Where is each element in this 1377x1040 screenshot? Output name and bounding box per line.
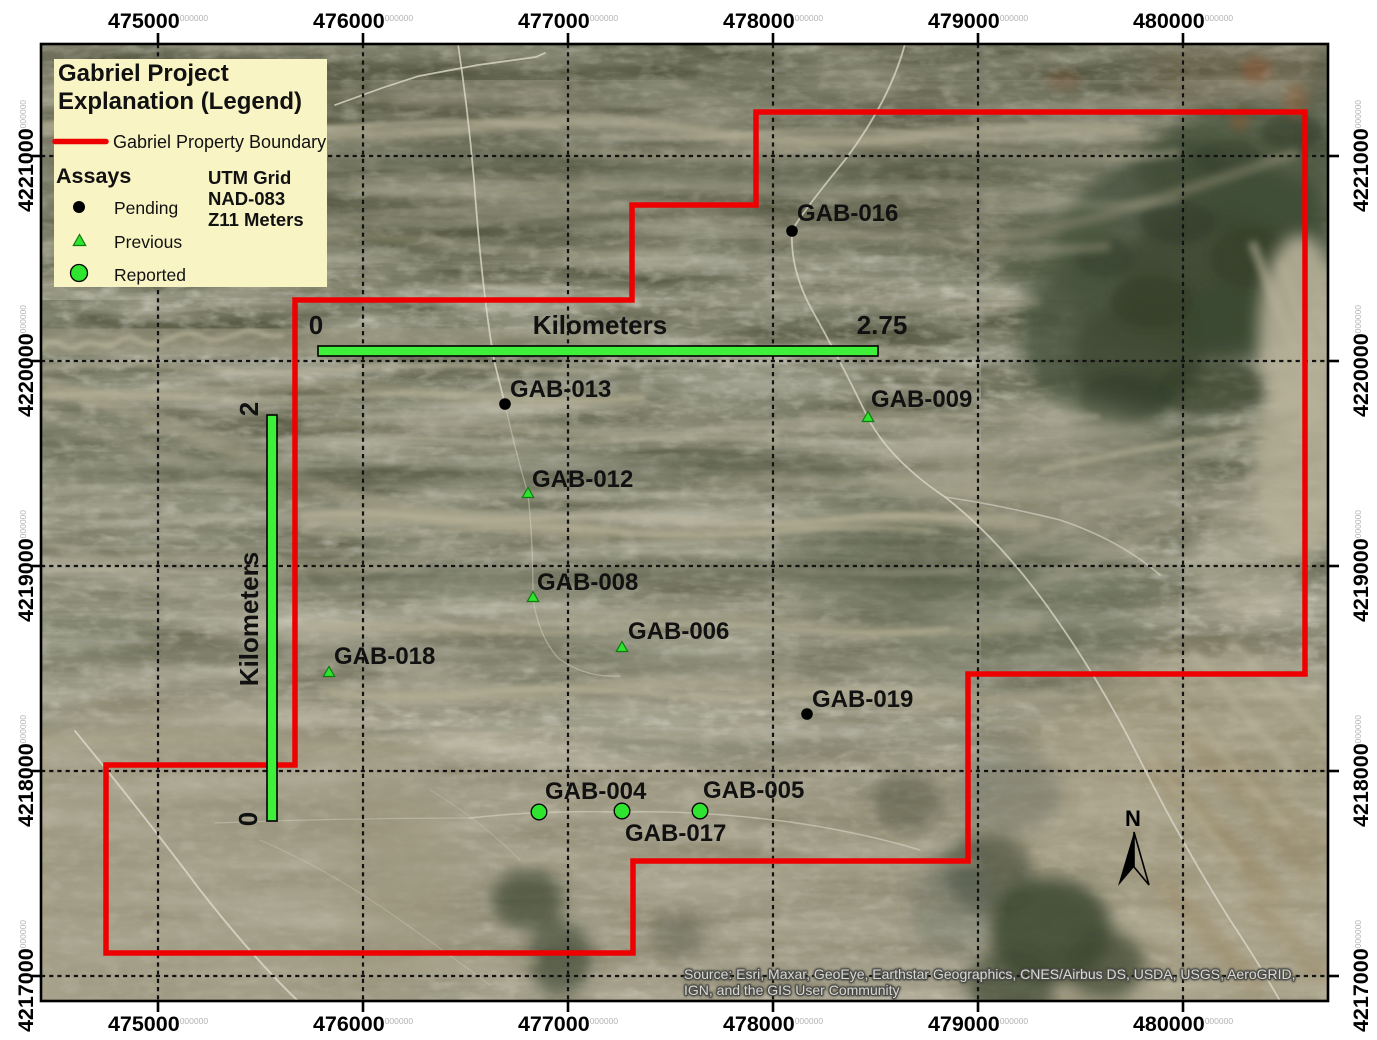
svg-text:4221000000000: 4221000000000 (14, 100, 38, 212)
svg-text:476000000000: 476000000000 (313, 9, 413, 33)
svg-text:Previous: Previous (114, 232, 182, 252)
svg-text:Kilometers: Kilometers (234, 552, 264, 686)
svg-text:478000000000: 478000000000 (723, 9, 823, 33)
svg-text:4217000000000: 4217000000000 (1349, 920, 1373, 1032)
svg-text:478000000000: 478000000000 (723, 1012, 823, 1036)
svg-text:Assays: Assays (56, 164, 131, 188)
svg-text:479000000000: 479000000000 (928, 1012, 1028, 1036)
svg-text:477000000000: 477000000000 (518, 1012, 618, 1036)
svg-text:Explanation (Legend): Explanation (Legend) (58, 88, 302, 115)
svg-text:Gabriel Project: Gabriel Project (58, 60, 229, 87)
svg-text:475000000000: 475000000000 (108, 1012, 208, 1036)
svg-text:480000000000: 480000000000 (1133, 9, 1233, 33)
svg-text:480000000000: 480000000000 (1133, 1012, 1233, 1036)
svg-text:GAB-013: GAB-013 (510, 376, 611, 403)
svg-text:475000000000: 475000000000 (108, 9, 208, 33)
svg-text:4220000000000: 4220000000000 (1349, 305, 1373, 417)
svg-text:Source: Esri, Maxar, GeoEye, E: Source: Esri, Maxar, GeoEye, Earthstar G… (684, 966, 1296, 982)
svg-text:GAB-009: GAB-009 (871, 386, 972, 413)
svg-text:GAB-004: GAB-004 (545, 778, 647, 805)
svg-text:NAD-083: NAD-083 (208, 188, 285, 209)
svg-text:GAB-008: GAB-008 (537, 569, 638, 596)
svg-text:GAB-019: GAB-019 (812, 686, 913, 713)
svg-text:Pending: Pending (114, 198, 178, 218)
svg-text:Gabriel Property Boundary: Gabriel Property Boundary (113, 132, 326, 152)
svg-text:4221000000000: 4221000000000 (1349, 100, 1373, 212)
svg-text:IGN, and the GIS User Communit: IGN, and the GIS User Community (684, 982, 900, 998)
svg-text:4217000000000: 4217000000000 (14, 920, 38, 1032)
svg-text:4219000000000: 4219000000000 (14, 510, 38, 622)
svg-text:2: 2 (234, 402, 264, 416)
svg-text:GAB-006: GAB-006 (628, 618, 729, 645)
svg-text:4218000000000: 4218000000000 (14, 715, 38, 827)
svg-text:0: 0 (233, 812, 263, 826)
svg-text:4218000000000: 4218000000000 (1349, 715, 1373, 827)
svg-text:GAB-018: GAB-018 (334, 643, 435, 670)
svg-text:4219000000000: 4219000000000 (1349, 510, 1373, 622)
svg-text:0: 0 (309, 310, 323, 340)
svg-text:4220000000000: 4220000000000 (14, 305, 38, 417)
svg-text:GAB-012: GAB-012 (532, 466, 633, 493)
svg-text:479000000000: 479000000000 (928, 9, 1028, 33)
svg-text:Reported: Reported (114, 265, 186, 285)
svg-text:GAB-017: GAB-017 (625, 820, 726, 847)
svg-text:477000000000: 477000000000 (518, 9, 618, 33)
svg-text:UTM Grid: UTM Grid (208, 167, 291, 188)
svg-text:2.75: 2.75 (857, 310, 908, 340)
svg-text:N: N (1125, 806, 1141, 831)
svg-text:Z11 Meters: Z11 Meters (208, 209, 304, 230)
svg-text:476000000000: 476000000000 (313, 1012, 413, 1036)
svg-text:Kilometers: Kilometers (533, 310, 667, 340)
svg-text:GAB-005: GAB-005 (703, 777, 804, 804)
svg-text:GAB-016: GAB-016 (797, 200, 898, 227)
